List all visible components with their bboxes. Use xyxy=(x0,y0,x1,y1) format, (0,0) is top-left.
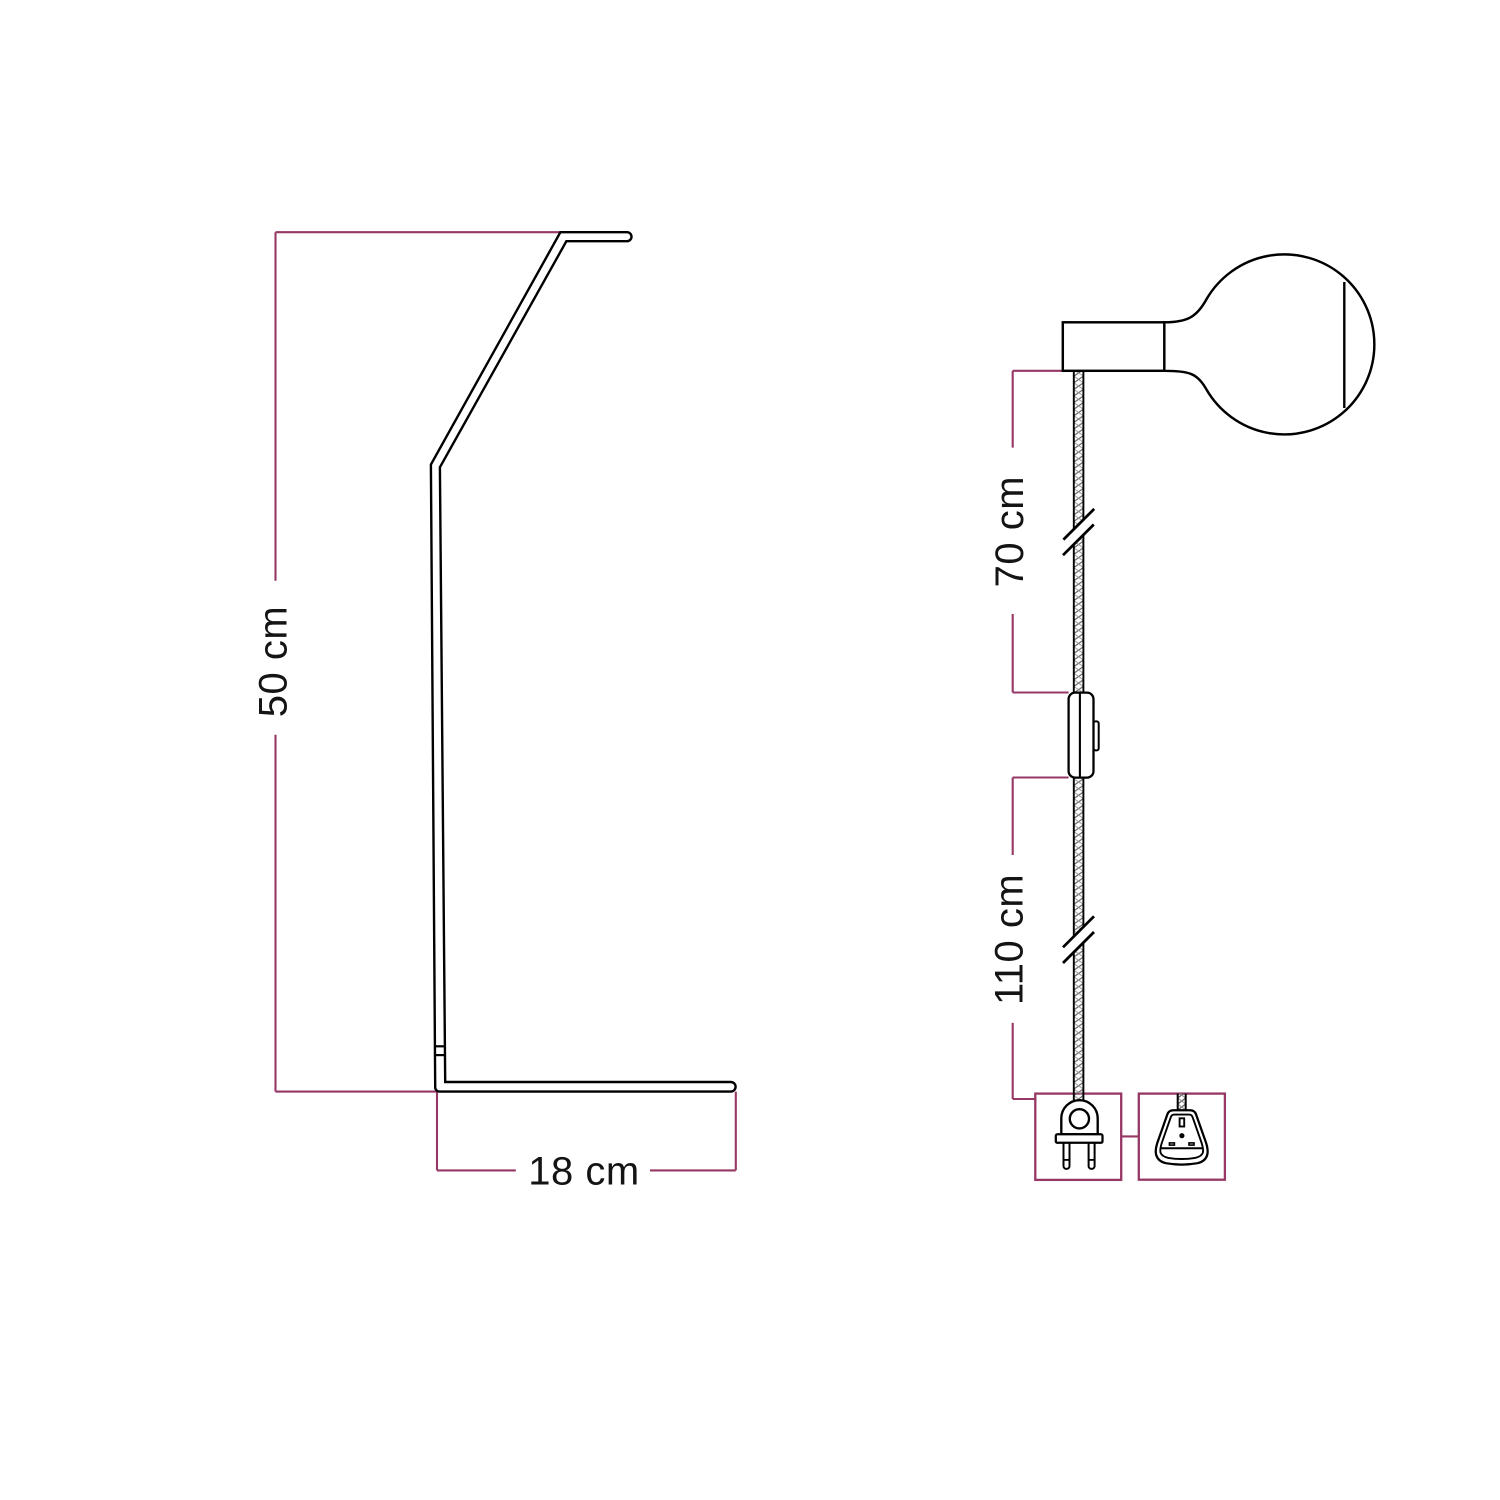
svg-text:70 cm: 70 cm xyxy=(988,476,1032,587)
svg-text:110 cm: 110 cm xyxy=(988,874,1032,1005)
svg-text:50 cm: 50 cm xyxy=(252,606,296,717)
svg-text:18 cm: 18 cm xyxy=(528,1150,639,1194)
